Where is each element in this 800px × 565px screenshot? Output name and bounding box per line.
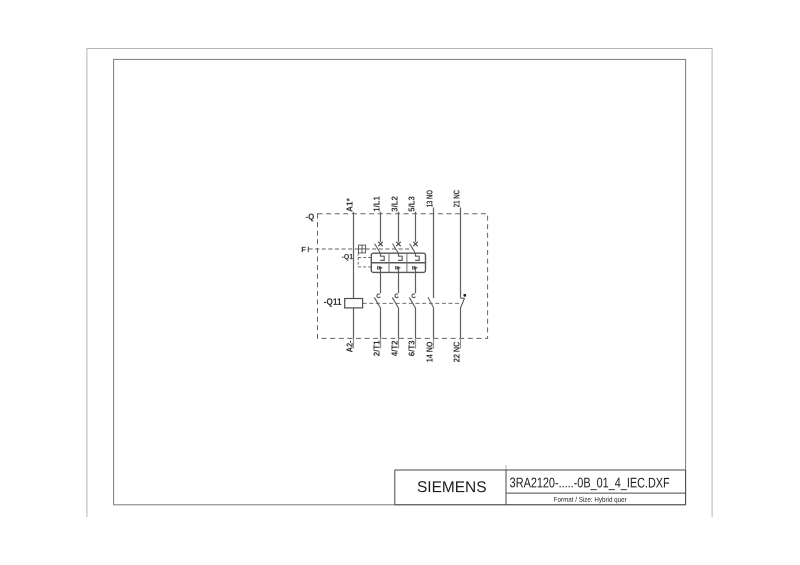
svg-text:6/T3: 6/T3 xyxy=(406,340,416,356)
svg-text:A1*: A1* xyxy=(345,198,355,212)
svg-text:1/L1: 1/L1 xyxy=(372,196,382,212)
svg-text:13 NO: 13 NO xyxy=(424,190,434,208)
svg-text:2/T1: 2/T1 xyxy=(372,340,382,356)
svg-text:A2-: A2- xyxy=(345,340,355,352)
svg-text:14 NO: 14 NO xyxy=(424,341,434,362)
svg-text:-Q11: -Q11 xyxy=(324,297,342,308)
svg-text:3RA2120-.....-0B_01_4_IEC.DXF: 3RA2120-.....-0B_01_4_IEC.DXF xyxy=(510,474,670,490)
svg-text:-Q: -Q xyxy=(305,212,314,222)
svg-text:3/L2: 3/L2 xyxy=(389,196,399,212)
svg-text:F: F xyxy=(301,245,306,254)
svg-text:4/T2: 4/T2 xyxy=(389,340,399,356)
svg-text:21 NC: 21 NC xyxy=(451,190,461,207)
svg-text:SIEMENS: SIEMENS xyxy=(417,479,487,496)
svg-text:22 NC: 22 NC xyxy=(451,342,461,363)
svg-text:5/L3: 5/L3 xyxy=(406,196,416,212)
svg-text:Format / Size: Hybrid quer: Format / Size: Hybrid quer xyxy=(554,497,628,504)
svg-text:-Q1: -Q1 xyxy=(342,252,354,261)
